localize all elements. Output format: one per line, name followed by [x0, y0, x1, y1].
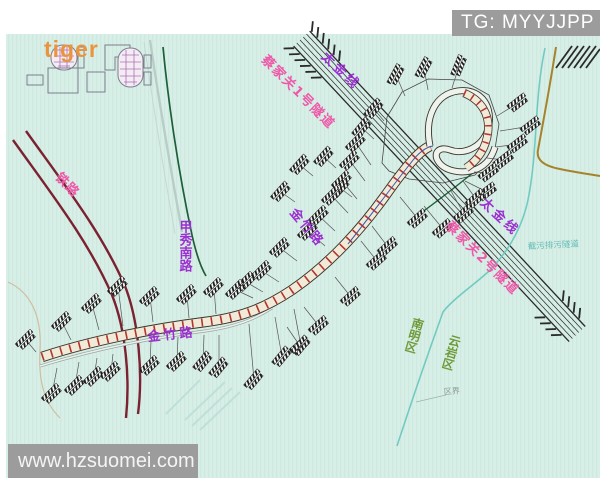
- website-watermark: www.hzsuomei.com: [8, 444, 198, 478]
- tiger-watermark: tiger: [44, 36, 99, 63]
- district-boundary-label: 区界: [444, 386, 461, 396]
- screenshot-page: 铁路 甲秀南路 金竹路 金竹路 太金线 太金线 蔡家关1号隧道 蔡家关2号隧道 …: [0, 0, 600, 480]
- construction-plan-map: 铁路 甲秀南路 金竹路 金竹路 太金线 太金线 蔡家关1号隧道 蔡家关2号隧道 …: [0, 0, 600, 480]
- jiaxiu-south-road-label: 甲秀南路: [177, 220, 194, 272]
- telegram-watermark: TG: MYYJJPP: [452, 10, 600, 36]
